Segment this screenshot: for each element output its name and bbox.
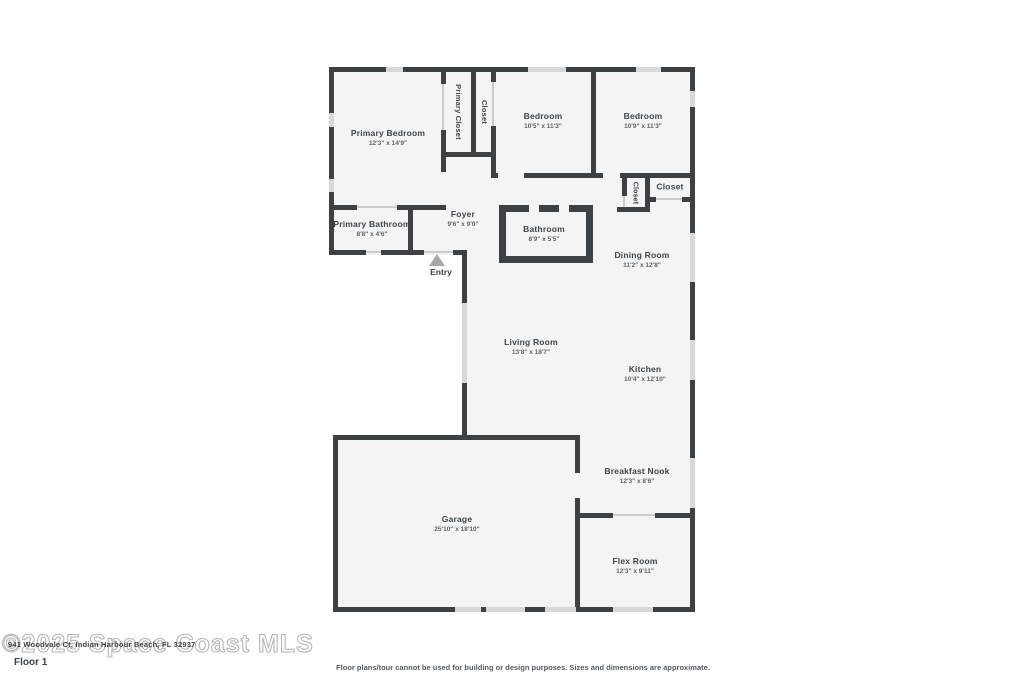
property-address: 941 Woodvale Ct, Indian Harbour Beach, F…: [8, 640, 196, 649]
disclaimer-text: Floor plans/tour cannot be used for buil…: [336, 663, 710, 672]
entry-label: Entry: [430, 267, 452, 277]
entry-arrow-icon: [429, 254, 445, 266]
floor-fills: [329, 67, 695, 612]
floor-number-label: Floor 1: [14, 657, 47, 668]
floor-plan-canvas: [0, 0, 1024, 683]
